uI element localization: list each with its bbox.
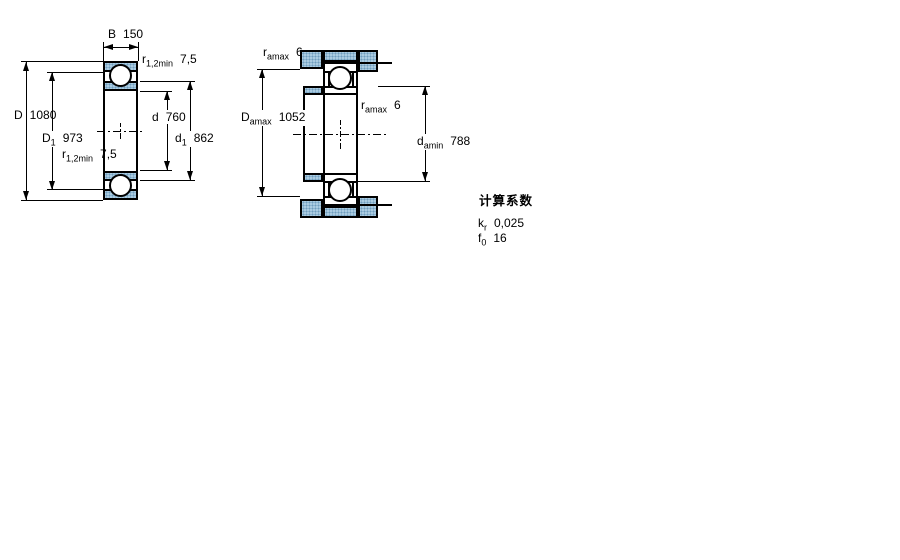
ext-line-damin-bottom (356, 181, 430, 182)
arrowhead-down (259, 187, 265, 196)
arrowhead-left (104, 44, 113, 50)
shaft-shoulder-top (303, 86, 323, 95)
dim-label-ra-top: ramax6 (263, 45, 303, 61)
arrowhead-down (23, 191, 29, 200)
ring-side-line (352, 71, 354, 87)
arrowhead-down (49, 181, 55, 190)
housing-top-middle (323, 50, 358, 62)
arrowhead-down (422, 172, 428, 181)
arrowhead-up (187, 81, 193, 90)
ext-line-Damax-bottom (257, 196, 300, 197)
housing-shoulder-top-left (300, 50, 323, 69)
ext-line-D1-bottom (47, 189, 103, 190)
dim-label-d1: d1862 (173, 131, 216, 147)
axis-centerline (97, 131, 145, 132)
housing-bore-line-bottom (358, 204, 392, 206)
arrowhead-down (164, 161, 170, 170)
arrowhead-up (164, 91, 170, 100)
center-tick (340, 120, 341, 149)
ext-line-D-top (21, 61, 103, 62)
calculation-factors-heading: 计算系数 (479, 194, 533, 208)
dim-line-Damax (262, 69, 263, 196)
factor-row-kr: kr0,025 (478, 216, 524, 232)
ext-line-D-bottom (21, 200, 103, 201)
arrowhead-down (187, 171, 193, 180)
housing-bore-line-top (358, 62, 392, 64)
arrowhead-up (49, 72, 55, 81)
arrowhead-up (23, 62, 29, 71)
factor-row-f0: f016 (478, 231, 507, 247)
housing-top-right (358, 50, 378, 72)
ball-bottom (109, 174, 132, 197)
drawing-canvas: B150 r1,2min7,5 D1080 D1973 r1,2min7,5 d… (0, 0, 900, 560)
dim-label-D1: D1973 (40, 131, 85, 147)
ball-bottom (328, 178, 352, 202)
center-tick (120, 123, 121, 139)
ext-line-D1-top (47, 72, 103, 73)
ext-line-B-right (138, 42, 139, 61)
shaft-shoulder-bottom (303, 173, 323, 182)
ball-top (109, 64, 132, 87)
dim-line-d (167, 91, 168, 170)
dim-line-D (26, 62, 27, 200)
arrowhead-up (259, 69, 265, 78)
housing-bottom-right (358, 196, 378, 218)
dim-label-Damax: Damax1052 (239, 110, 307, 126)
arrowhead-up (422, 86, 428, 95)
housing-shoulder-bottom-left (300, 199, 323, 218)
ring-side-line (352, 182, 354, 197)
housing-bottom-middle (323, 206, 358, 218)
dim-label-r-bottom: r1,2min7,5 (62, 147, 117, 163)
dim-label-damin: damin788 (415, 134, 472, 150)
dim-label-ra-mid: ramax6 (359, 98, 403, 114)
dim-label-d: d760 (150, 110, 188, 124)
ext-line-d1-bottom (140, 180, 195, 181)
ball-top (328, 66, 352, 90)
arrowhead-right (129, 44, 138, 50)
dim-label-B: B150 (108, 27, 143, 41)
dim-label-r-top: r1,2min7,5 (142, 52, 197, 68)
ext-line-d-bottom (140, 170, 172, 171)
dim-label-D: D1080 (14, 108, 56, 122)
